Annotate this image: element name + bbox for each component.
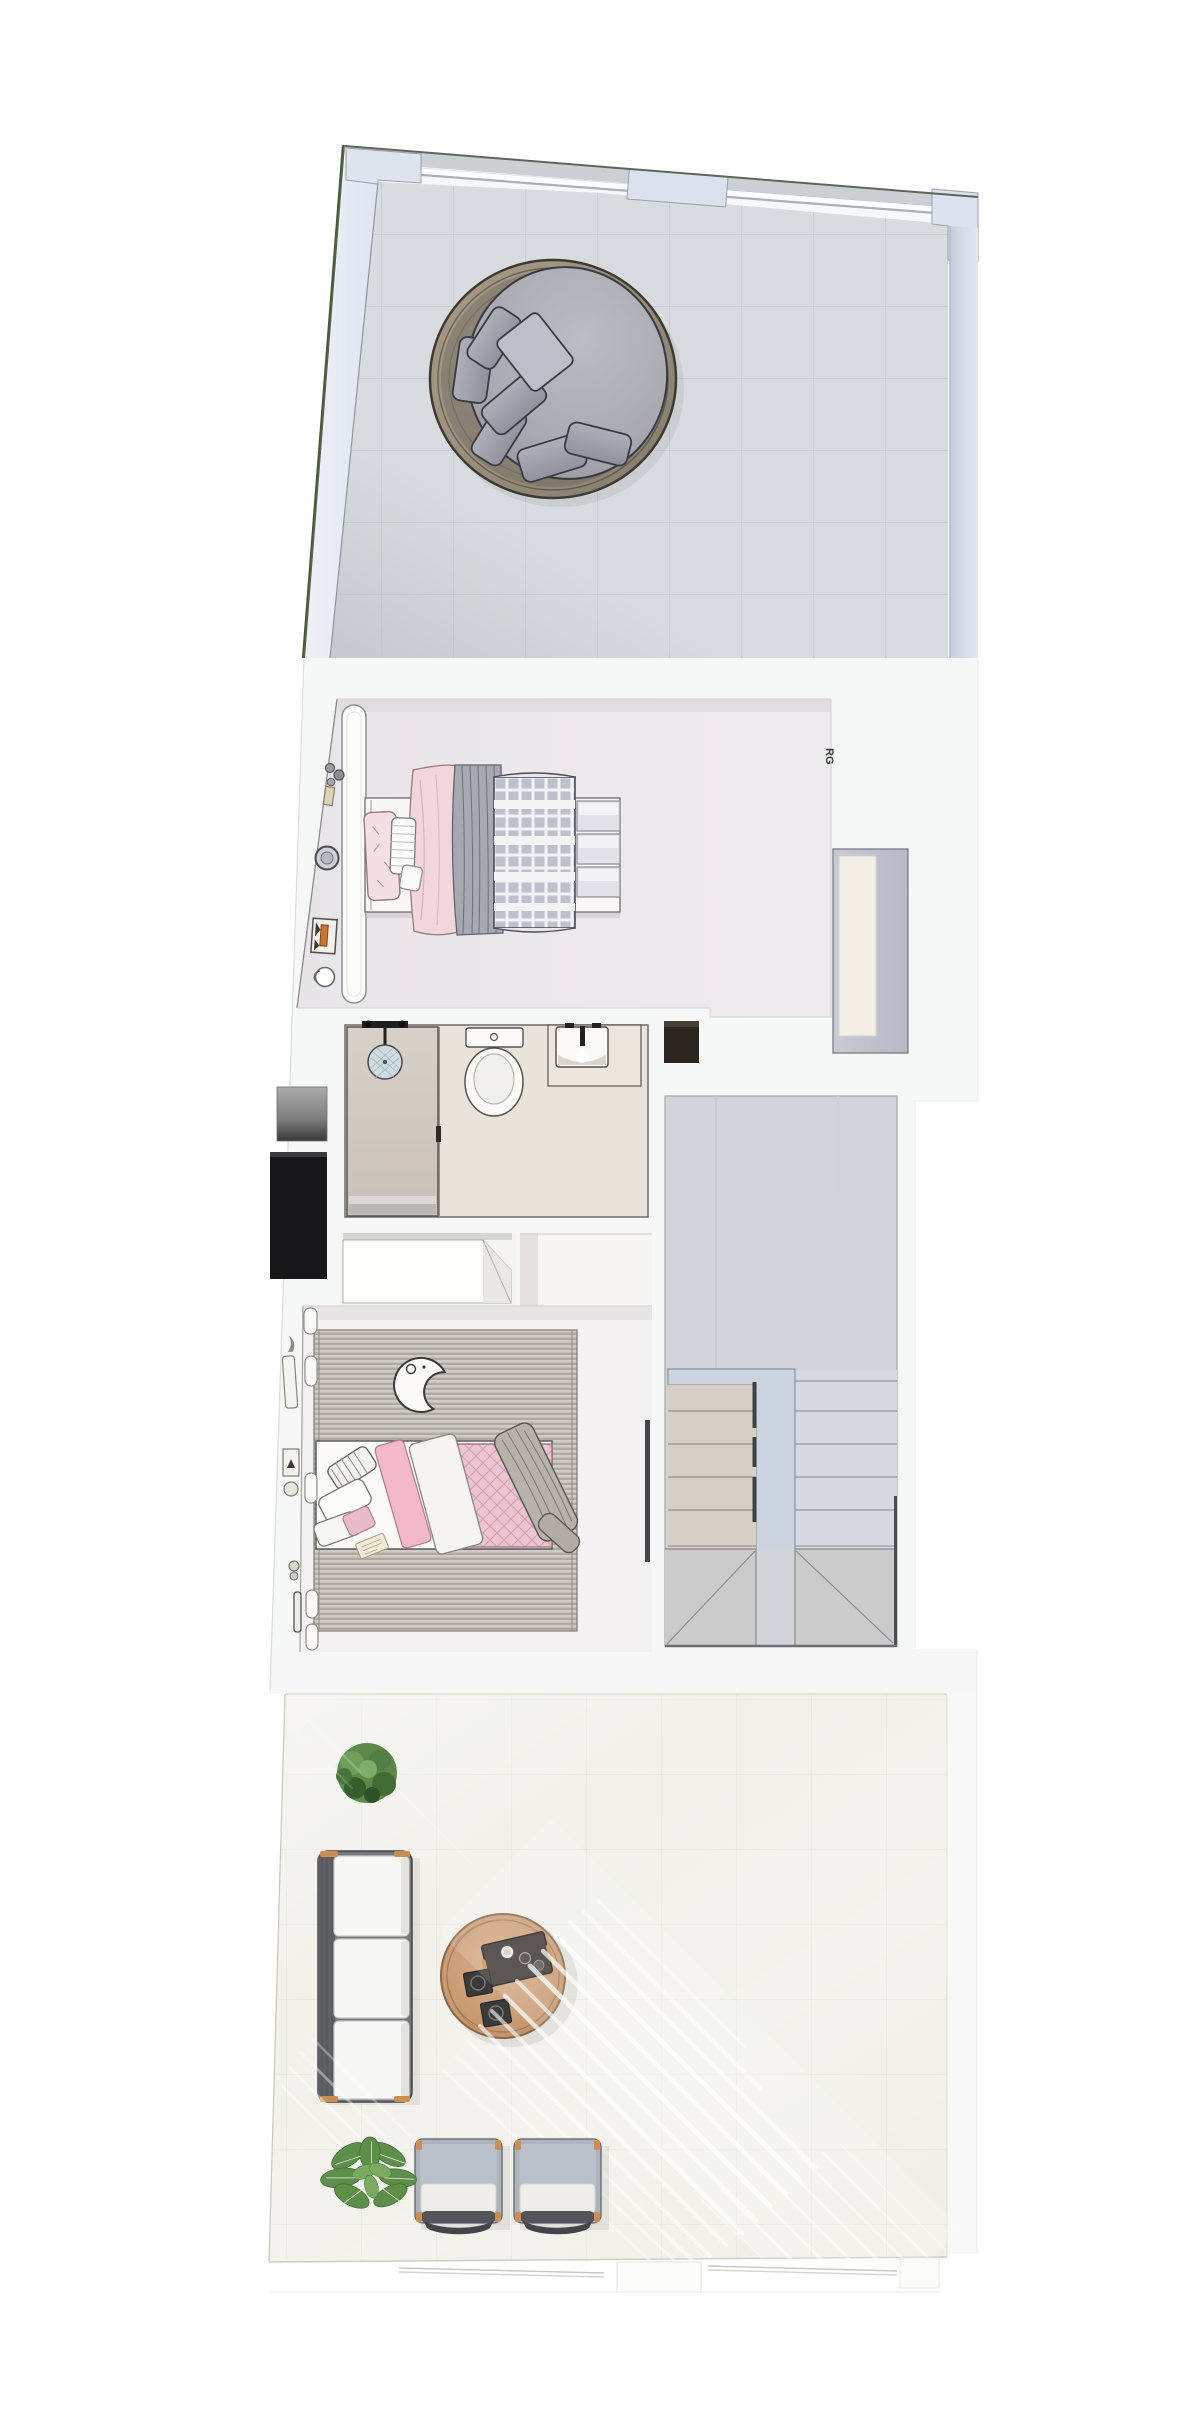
svg-text:RG: RG — [823, 748, 835, 765]
